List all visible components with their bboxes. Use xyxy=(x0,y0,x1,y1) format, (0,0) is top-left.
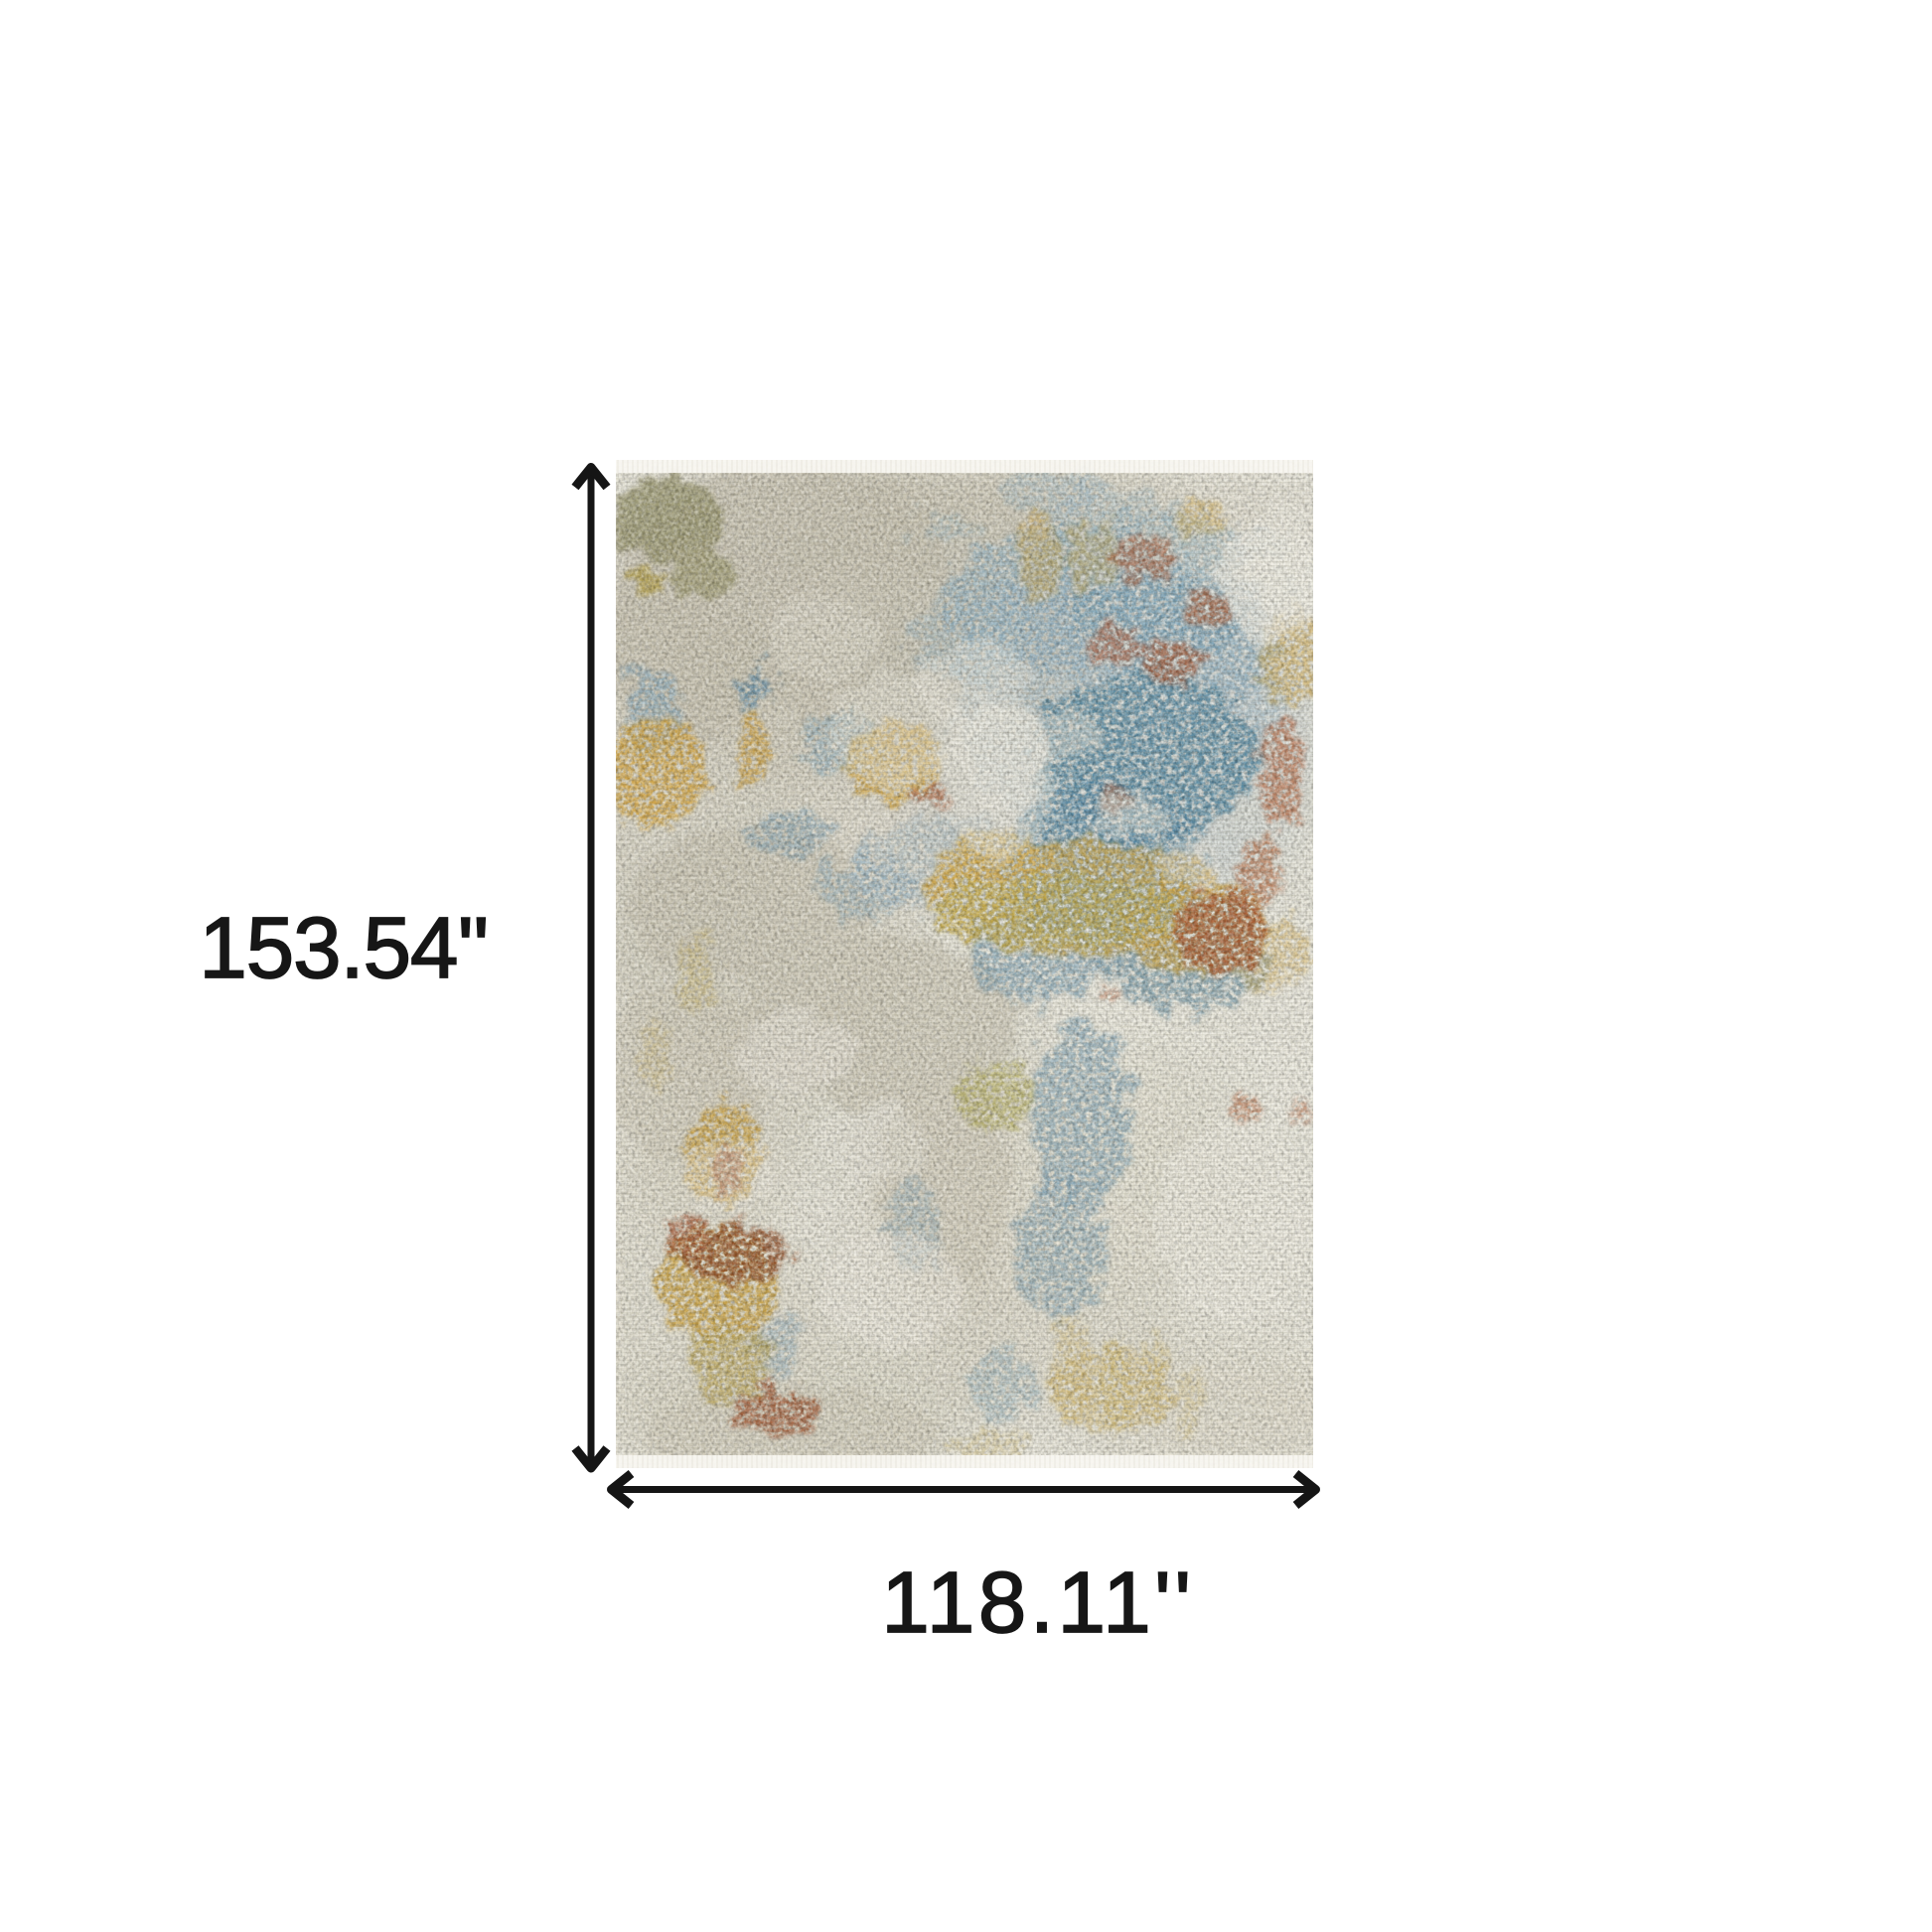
svg-text:118.11'': 118.11'' xyxy=(881,1555,1194,1651)
svg-text:153.54'': 153.54'' xyxy=(199,900,488,996)
